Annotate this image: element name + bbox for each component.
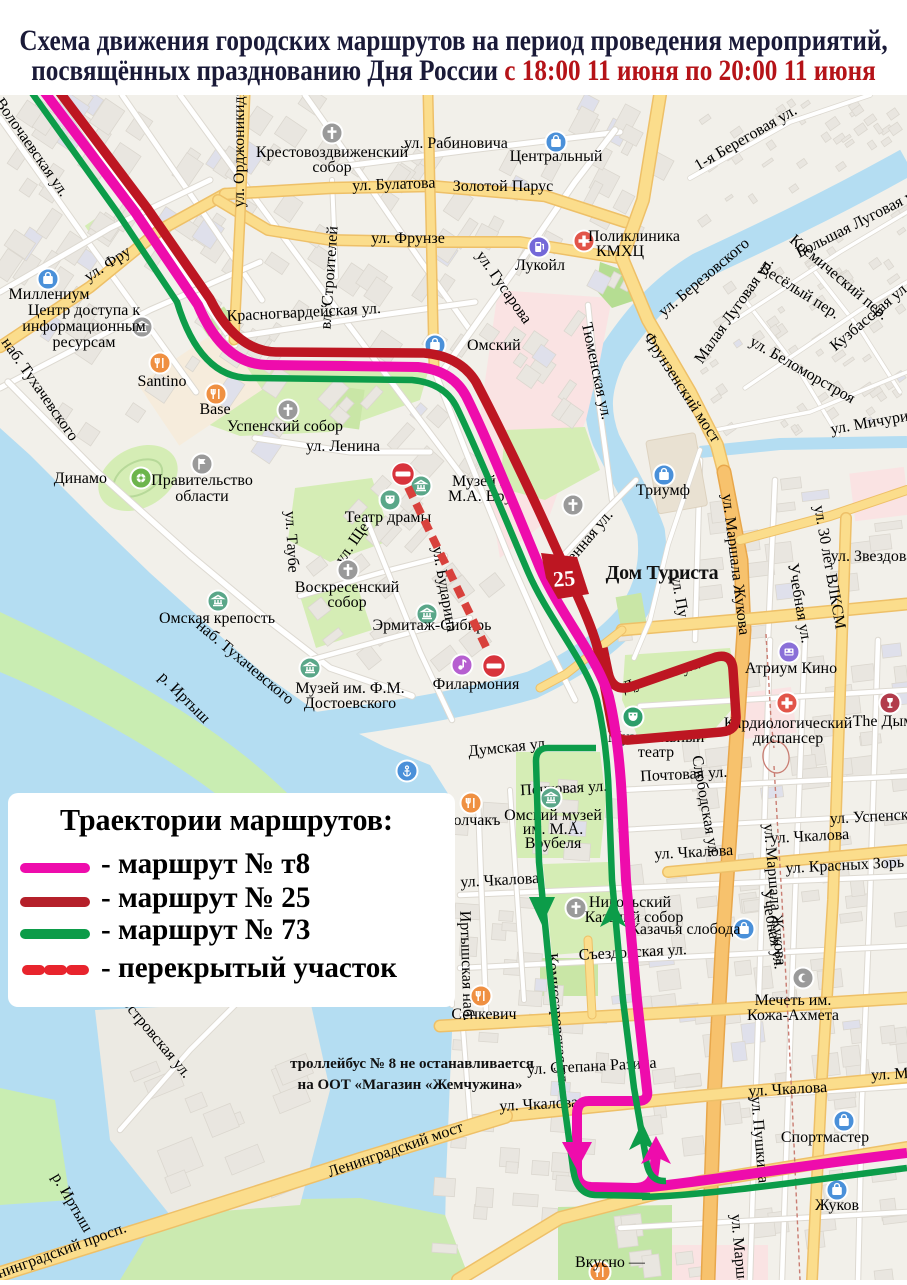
- svg-text:Триумф: Триумф: [636, 482, 690, 499]
- svg-text:Base: Base: [199, 401, 230, 418]
- svg-text:ул. Рабиновича: ул. Рабиновича: [404, 135, 508, 152]
- svg-text:собор: собор: [312, 159, 351, 176]
- svg-text:Достоевского: Достоевского: [304, 695, 396, 712]
- svg-text:Центральный: Центральный: [510, 148, 603, 165]
- svg-text:The Дым: The Дым: [853, 713, 907, 730]
- svg-text:Омский: Омский: [467, 337, 521, 354]
- svg-text:- маршрут № т8: - маршрут № т8: [101, 848, 310, 880]
- svg-text:Сенкевич: Сенкевич: [451, 1006, 516, 1023]
- svg-text:Жуков: Жуков: [815, 1197, 860, 1214]
- svg-text:Успенский собор: Успенский собор: [227, 418, 343, 435]
- svg-text:25: 25: [552, 565, 576, 592]
- svg-text:Кожа-Ахмета: Кожа-Ахмета: [747, 1007, 839, 1024]
- svg-text:Santino: Santino: [138, 373, 187, 390]
- svg-text:Дом Туриста: Дом Туриста: [606, 562, 719, 584]
- svg-text:Филармония: Филармония: [433, 676, 520, 693]
- svg-text:театр: театр: [638, 744, 674, 761]
- svg-text:ул. Звездова: ул. Звездова: [831, 548, 907, 565]
- svg-text:- маршрут № 73: - маршрут № 73: [101, 914, 310, 946]
- svg-text:Лукойл: Лукойл: [515, 257, 565, 274]
- svg-text:ул. Фрунзе: ул. Фрунзе: [371, 230, 445, 247]
- svg-text:диспансер: диспансер: [753, 730, 823, 747]
- svg-text:ул. Таубе: ул. Таубе: [281, 510, 301, 573]
- svg-text:- перекрытый участок: - перекрытый участок: [101, 952, 397, 984]
- svg-text:ул. Булатова: ул. Булатова: [352, 175, 436, 195]
- svg-text:ул. М: ул. М: [871, 1065, 907, 1084]
- svg-text:Траектории маршрутов:: Траектории маршрутов:: [60, 803, 393, 838]
- svg-text:информационным: информационным: [22, 318, 146, 335]
- svg-text:троллейбус № 8 не останавливае: троллейбус № 8 не останавливается: [290, 1056, 534, 1072]
- svg-text:ресурсам: ресурсам: [53, 334, 116, 351]
- svg-text:Центр доступа к: Центр доступа к: [28, 302, 140, 319]
- svg-text:Динамо: Динамо: [54, 470, 107, 487]
- svg-text:на ООТ «Магазин «Жемчужина»: на ООТ «Магазин «Жемчужина»: [298, 1077, 523, 1093]
- svg-text:области: области: [175, 488, 229, 505]
- svg-text:- маршрут № 25: - маршрут № 25: [101, 882, 310, 914]
- svg-text:Золотой Парус: Золотой Парус: [453, 178, 553, 195]
- svg-text:Миллениум: Миллениум: [9, 286, 90, 303]
- svg-text:собор: собор: [327, 594, 366, 611]
- svg-text:ул. Ленина: ул. Ленина: [306, 438, 380, 455]
- svg-text:Вкусно —: Вкусно —: [575, 1254, 646, 1271]
- svg-text:Врубеля: Врубеля: [525, 835, 582, 852]
- svg-text:КМХЦ: КМХЦ: [596, 243, 644, 260]
- svg-text:ул. Орджоникидзе: ул. Орджоникидзе: [231, 83, 248, 208]
- svg-text:Спортмастер: Спортмастер: [781, 1129, 869, 1146]
- svg-text:Атриум Кино: Атриум Кино: [745, 660, 837, 677]
- svg-text:Омская крепость: Омская крепость: [159, 610, 275, 627]
- svg-text:Правительство: Правительство: [151, 472, 253, 489]
